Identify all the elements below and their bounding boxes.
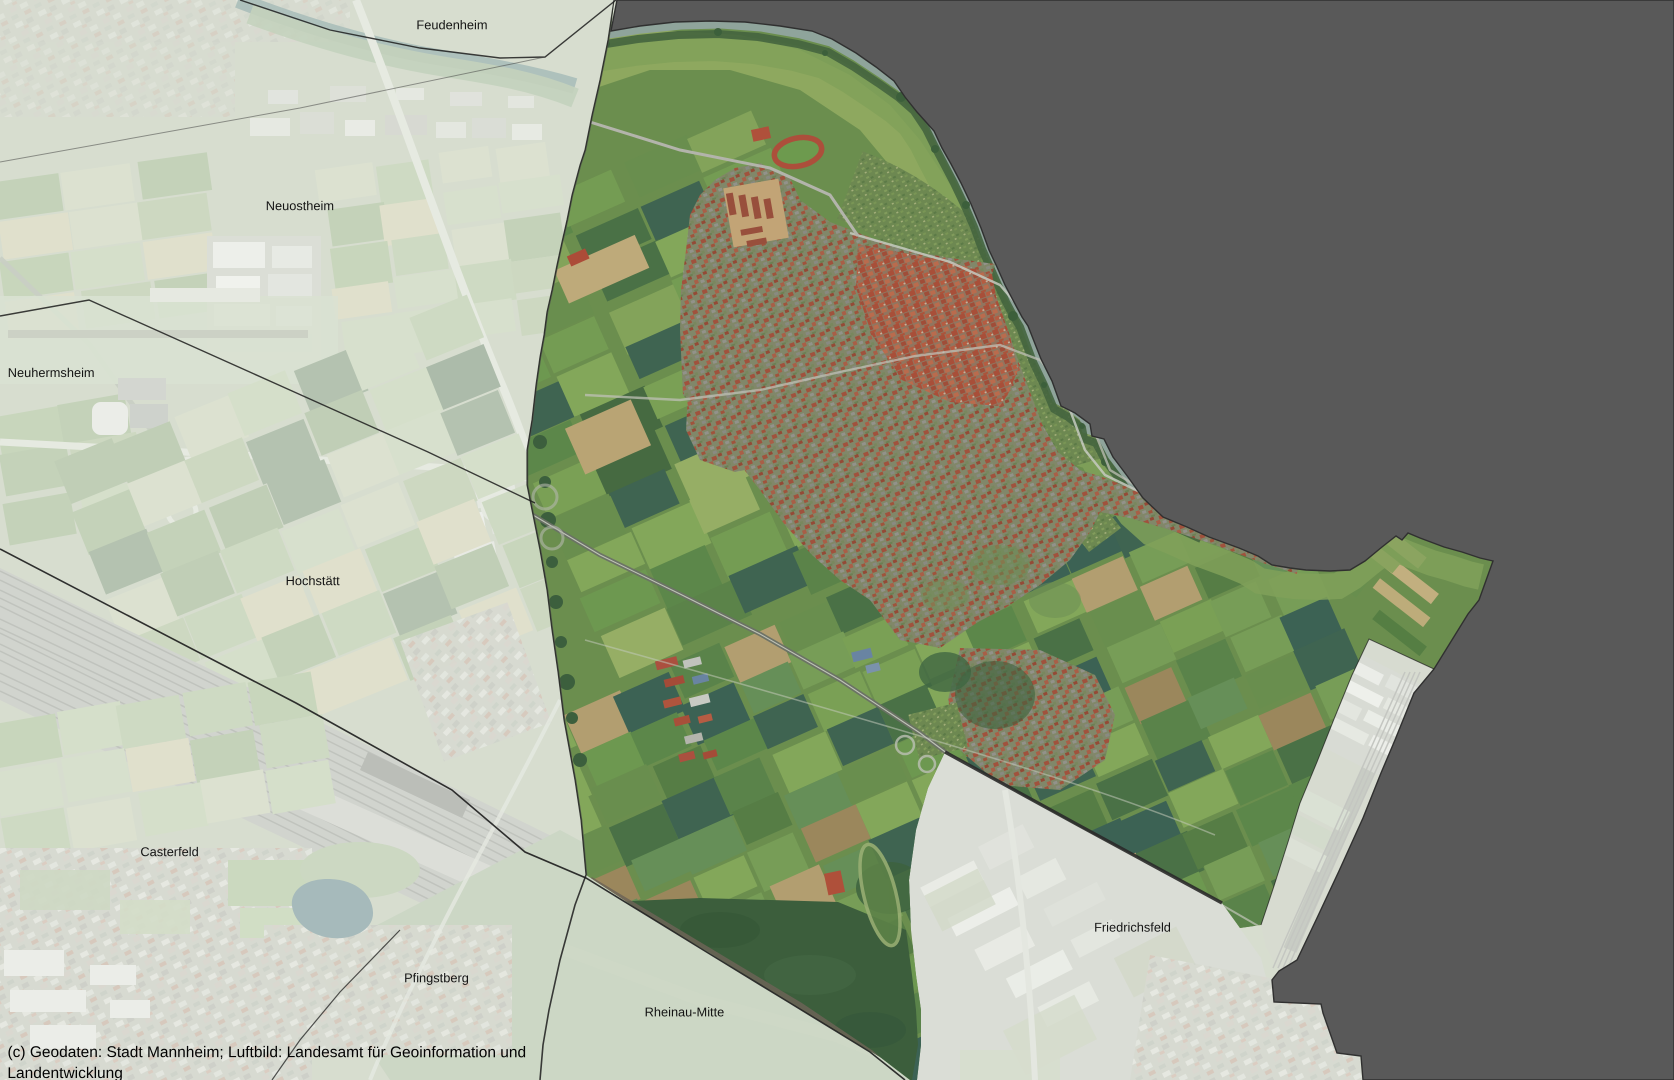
svg-text:Rheinau-Mitte: Rheinau-Mitte — [645, 1004, 725, 1019]
svg-text:Landentwicklung: Landentwicklung — [7, 1065, 122, 1080]
svg-text:Friedrichsfeld: Friedrichsfeld — [1094, 920, 1171, 935]
svg-text:Pfingstberg: Pfingstberg — [404, 970, 469, 985]
svg-text:(c) Geodaten: Stadt Mannheim;: (c) Geodaten: Stadt Mannheim; Luftbild: … — [7, 1044, 526, 1061]
svg-text:Neuostheim: Neuostheim — [266, 198, 334, 213]
svg-text:Hochstätt: Hochstätt — [286, 573, 341, 588]
svg-text:Feudenheim: Feudenheim — [416, 17, 487, 32]
svg-text:Neuhermsheim: Neuhermsheim — [8, 365, 95, 380]
svg-text:Casterfeld: Casterfeld — [140, 844, 198, 859]
